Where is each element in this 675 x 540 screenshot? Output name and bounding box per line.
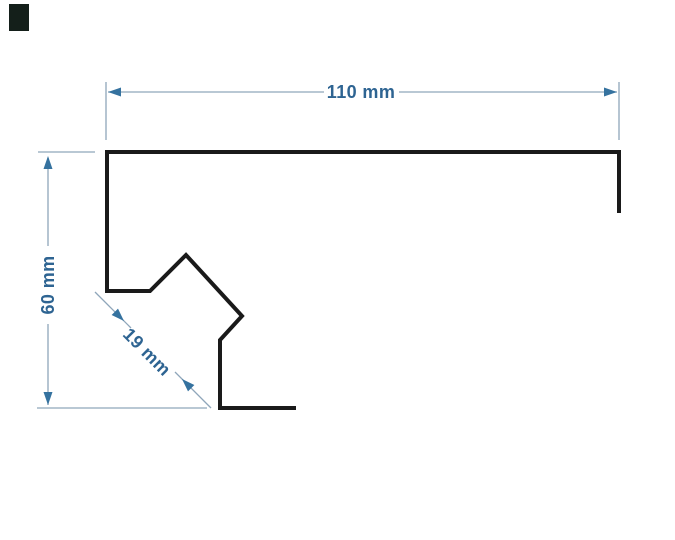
dim-line-19-b <box>175 372 211 408</box>
dimension-label-width: 110 mm <box>327 83 395 101</box>
profile-diagram: 110 mm 60 mm 19 mm <box>0 0 675 540</box>
arrow-110-left <box>108 88 121 97</box>
profile-outline <box>107 152 619 408</box>
color-swatch <box>9 4 29 31</box>
arrow-110-right <box>604 88 617 97</box>
arrow-60-down <box>44 392 53 405</box>
profile-drawing <box>0 0 675 540</box>
dimension-label-height: 60 mm <box>39 255 57 314</box>
arrow-60-up <box>44 156 53 169</box>
dim-line-19-a <box>95 292 131 328</box>
